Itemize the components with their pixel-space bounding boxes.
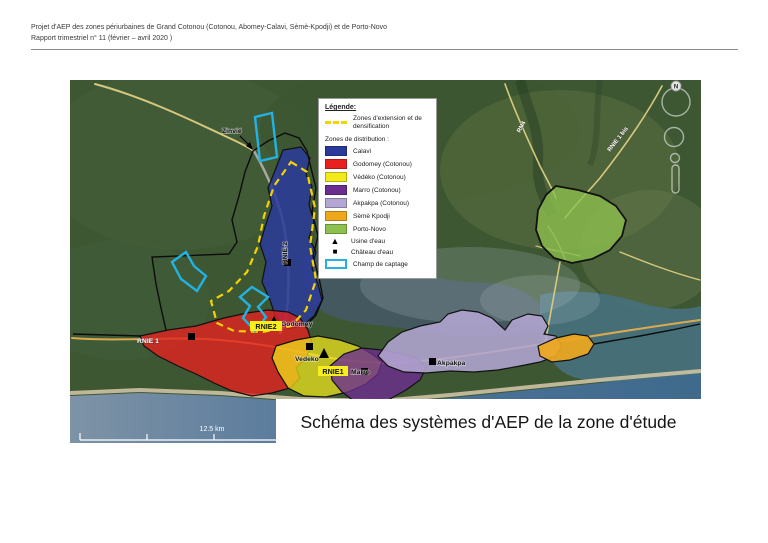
report-header: Projet d'AEP des zones périurbaines de G… <box>31 23 738 50</box>
symbol-label: Usine d'eau <box>351 238 385 245</box>
map-label-rnie1-tag: RNIE1 <box>322 367 343 376</box>
legend-item-usine-deau: ▲ Usine d'eau <box>325 237 430 245</box>
symbol-label: Château d'eau <box>351 249 393 256</box>
map-label-rnie2-tag: RNIE2 <box>255 322 276 331</box>
legend-item-chateau-deau: ■ Château d'eau <box>325 248 430 256</box>
compass-north-label: N <box>674 85 678 91</box>
legend-item-seme-kpodji: Sèmè Kpodji <box>325 211 430 221</box>
legend-item-calavi: Calavi <box>325 146 430 156</box>
legend-item-godomey: Godomey (Cotonou) <box>325 159 430 169</box>
legend-distribution-heading: Zones de distribution : <box>325 136 430 143</box>
chateau-deau-marker <box>188 333 195 340</box>
legend-item-extension: Zones d'extension et de densification <box>325 115 430 131</box>
zone-label: Calavi <box>353 148 371 155</box>
color-swatch <box>325 224 347 234</box>
map-label-rnie1-west: RNIE 1 <box>137 338 159 345</box>
color-swatch <box>325 211 347 221</box>
color-swatch <box>325 172 347 182</box>
symbol-label: Champ de captage <box>353 261 408 268</box>
cyan-rect-icon <box>325 259 347 269</box>
legend-item-porto-novo: Porto-Novo <box>325 224 430 234</box>
legend-item-akpakpa: Akpakpa (Cotonou) <box>325 198 430 208</box>
zone-label: Védéko (Cotonou) <box>353 174 406 181</box>
zone-label: Sèmè Kpodji <box>353 213 390 220</box>
color-swatch <box>325 159 347 169</box>
zone-label: Marro (Cotonou) <box>353 187 401 194</box>
legend-panel: Légende: Zones d'extension et de densifi… <box>318 98 437 279</box>
header-line-1: Projet d'AEP des zones périurbaines de G… <box>31 23 738 34</box>
extension-dash-swatch <box>325 121 347 124</box>
figure-title: Schéma des systèmes d'AEP de la zone d'é… <box>276 399 701 445</box>
header-line-2: Rapport trimestriel n° 11 (février – avr… <box>31 34 738 45</box>
chateau-deau-marker <box>429 358 436 365</box>
square-icon: ■ <box>325 248 345 256</box>
map-label-marro: Marro <box>351 369 370 376</box>
color-swatch <box>325 198 347 208</box>
legend-item-vedeko: Védéko (Cotonou) <box>325 172 430 182</box>
legend-item-marro: Marro (Cotonou) <box>325 185 430 195</box>
chateau-deau-marker <box>306 343 313 350</box>
zone-label: Godomey (Cotonou) <box>353 161 412 168</box>
triangle-icon: ▲ <box>325 237 345 245</box>
map-label-rnie2-road: RNIE-2 <box>282 242 289 265</box>
color-swatch <box>325 146 347 156</box>
zone-label: Akpakpa (Cotonou) <box>353 200 409 207</box>
scale-label: 12.5 km <box>200 426 225 433</box>
zone-label: Porto-Novo <box>353 226 386 233</box>
extension-label: Zones d'extension et de densification <box>353 115 430 131</box>
map-label-vedeko: Vedeko <box>295 356 319 363</box>
legend-title: Légende: <box>325 104 430 111</box>
report-page: Projet d'AEP des zones périurbaines de G… <box>0 0 768 543</box>
color-swatch <box>325 185 347 195</box>
legend-item-champ-de-captage: Champ de captage <box>325 259 430 269</box>
map-label-godomey: Godomey <box>281 321 313 328</box>
map-label-akpakpa: Akpakpa <box>437 360 466 367</box>
map-label-zinvie: Zinvié <box>222 128 242 135</box>
